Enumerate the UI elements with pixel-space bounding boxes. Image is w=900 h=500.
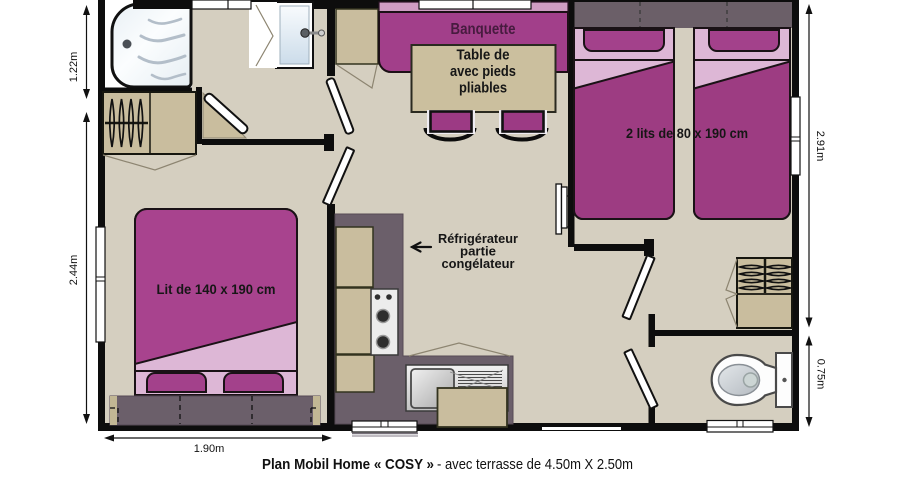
svg-text:Table de: Table de [457,48,510,64]
svg-text:0.75m: 0.75m [815,359,827,390]
svg-text:Lit de 140 x 190 cm: Lit de 140 x 190 cm [157,281,276,297]
svg-text:avec pieds: avec pieds [450,64,516,80]
svg-text:Banquette: Banquette [451,21,516,38]
svg-text:congélateur: congélateur [442,256,515,271]
svg-text:1.90m: 1.90m [194,443,225,455]
svg-text:- avec terrasse de 4.50m X 2.: - avec terrasse de 4.50m X 2.50m [437,456,633,473]
svg-text:pliables: pliables [459,81,507,97]
svg-text:1.22m: 1.22m [68,52,80,83]
svg-text:2.44m: 2.44m [68,255,80,286]
svg-text:2.91m: 2.91m [814,131,826,162]
svg-text:2 lits de 80 x 190 cm: 2 lits de 80 x 190 cm [626,125,748,141]
svg-text:Plan Mobil Home « COSY »: Plan Mobil Home « COSY » [262,456,434,473]
